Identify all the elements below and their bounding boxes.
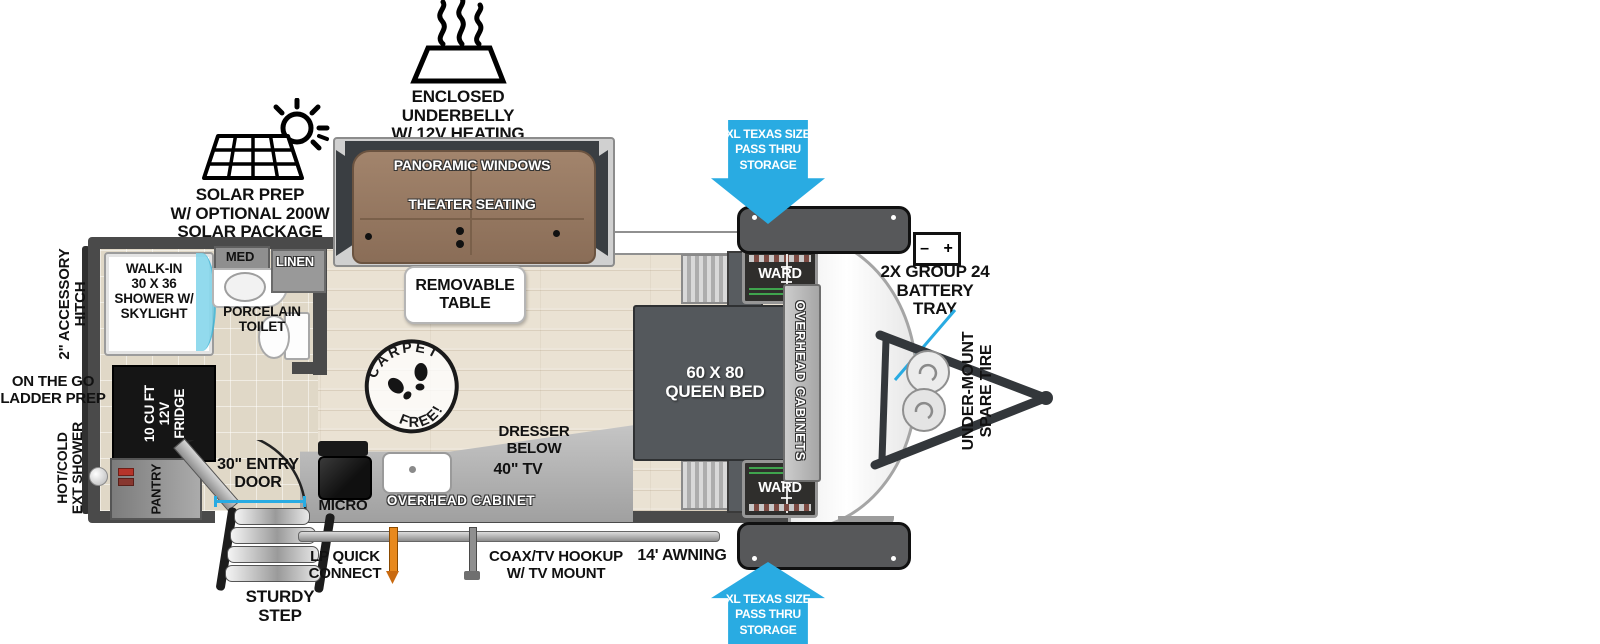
pass-thru-top-label: XL TEXAS SIZE PASS THRU STORAGE: [711, 127, 825, 173]
entry-door-label: 30" ENTRY DOOR: [212, 456, 304, 491]
overhead-cabinets-strip: OVERHEAD CABINETS: [783, 284, 821, 482]
fridge-label: 10 CU FT 12V FRIDGE: [141, 385, 186, 442]
ext-shower-label: HOT/COLD EXT SHOWER: [55, 422, 86, 514]
solar-panel-icon: [200, 98, 335, 186]
ward-top-label: WARD: [745, 267, 815, 283]
theater-seating-label: THEATER SEATING: [352, 197, 592, 212]
floorplan-canvas: ENCLOSED UNDERBELLY W/ 12V HEATING PADS …: [0, 0, 1600, 644]
ext-shower-knob: [89, 467, 108, 486]
panoramic-windows-label: PANORAMIC WINDOWS: [352, 158, 592, 173]
ward-bottom-label: WARD: [745, 481, 815, 497]
coax-connector-base: [464, 571, 480, 580]
awning-rail: [298, 531, 720, 542]
coax-label: COAX/TV HOOKUP W/ TV MOUNT: [484, 549, 628, 582]
accessory-hitch-callout: 2" ACCESSORY HITCH: [14, 239, 132, 369]
awning-label: 14' AWNING: [632, 547, 732, 565]
bedroom-window: [603, 231, 745, 255]
removable-table-label: REMOVABLE TABLE: [415, 277, 514, 312]
cupholder-dot: [456, 227, 464, 235]
microwave-icon: [318, 456, 372, 500]
overhead-cabinets-label: OVERHEAD CABINETS: [785, 286, 815, 476]
med-label: MED: [214, 250, 266, 264]
dresser-label: DRESSER BELOW: [490, 424, 578, 457]
queen-bed: 60 X 80 QUEEN BED: [633, 305, 797, 461]
lp-connector-icon: [389, 527, 398, 573]
pass-thru-arrow-bottom: XL TEXAS SIZE PASS THRU STORAGE: [711, 562, 825, 644]
door-fastener: [891, 215, 896, 220]
battery-icon: – +: [913, 232, 961, 266]
ward-stripe: [749, 255, 811, 262]
faucet-dot: [409, 466, 416, 473]
kitchen-sink: [382, 452, 452, 494]
cupholder-dot: [553, 230, 560, 237]
coax-connector-icon: [469, 527, 477, 575]
pass-thru-bottom-label: XL TEXAS SIZE PASS THRU STORAGE: [711, 592, 825, 638]
solar-label: SOLAR PREP W/ OPTIONAL 200W SOLAR PACKAG…: [160, 186, 340, 242]
pass-thru-door-bottom: [737, 522, 911, 570]
door-fastener: [752, 556, 757, 561]
ward-rod-tick: [781, 497, 792, 499]
cooktop-icon: [318, 441, 368, 456]
queen-bed-label: 60 X 80 QUEEN BED: [665, 364, 764, 401]
ext-shower-callout: HOT/COLD EXT SHOWER: [20, 408, 120, 528]
bathroom-sink: [224, 272, 266, 302]
measure-line: [214, 500, 306, 503]
cupholder-dot: [365, 233, 372, 240]
bedroom-cabinet-top: [681, 254, 731, 304]
ladder-prep-label: ON THE GO LADDER PREP: [0, 374, 106, 407]
ward-stripe: [749, 504, 811, 511]
pantry-can: [118, 478, 134, 486]
spare-tire-callout: UNDER-MOUNT SPARE TIRE: [912, 326, 1044, 456]
sofa-seat-seam: [360, 218, 584, 220]
heating-pads-icon: [398, 0, 518, 86]
battery-terminals: – +: [916, 240, 958, 258]
removable-table: REMOVABLE TABLE: [404, 266, 526, 324]
door-fastener: [891, 556, 896, 561]
bedroom-cabinet-bottom: [681, 460, 731, 510]
measure-tick-left: [214, 496, 217, 507]
toilet-label: PORCELAIN TOILET: [216, 305, 308, 335]
accessory-hitch-label: 2" ACCESSORY HITCH: [57, 248, 90, 359]
pantry-can: [118, 468, 134, 476]
bathroom-wall-foot: [292, 362, 327, 374]
overhead-cabinet-label: OVERHEAD CABINET: [384, 494, 538, 509]
linen-label: LINEN: [262, 255, 328, 269]
door-fastener: [752, 215, 757, 220]
spare-tire-label: UNDER-MOUNT SPARE TIRE: [960, 332, 995, 451]
tv-label: 40" TV: [486, 461, 550, 479]
sturdy-step-label: STURDY STEP: [228, 588, 332, 625]
cupholder-dot: [456, 240, 464, 248]
step-tread: [234, 508, 310, 525]
lp-connect-label: LP QUICK CONNECT: [302, 549, 388, 582]
